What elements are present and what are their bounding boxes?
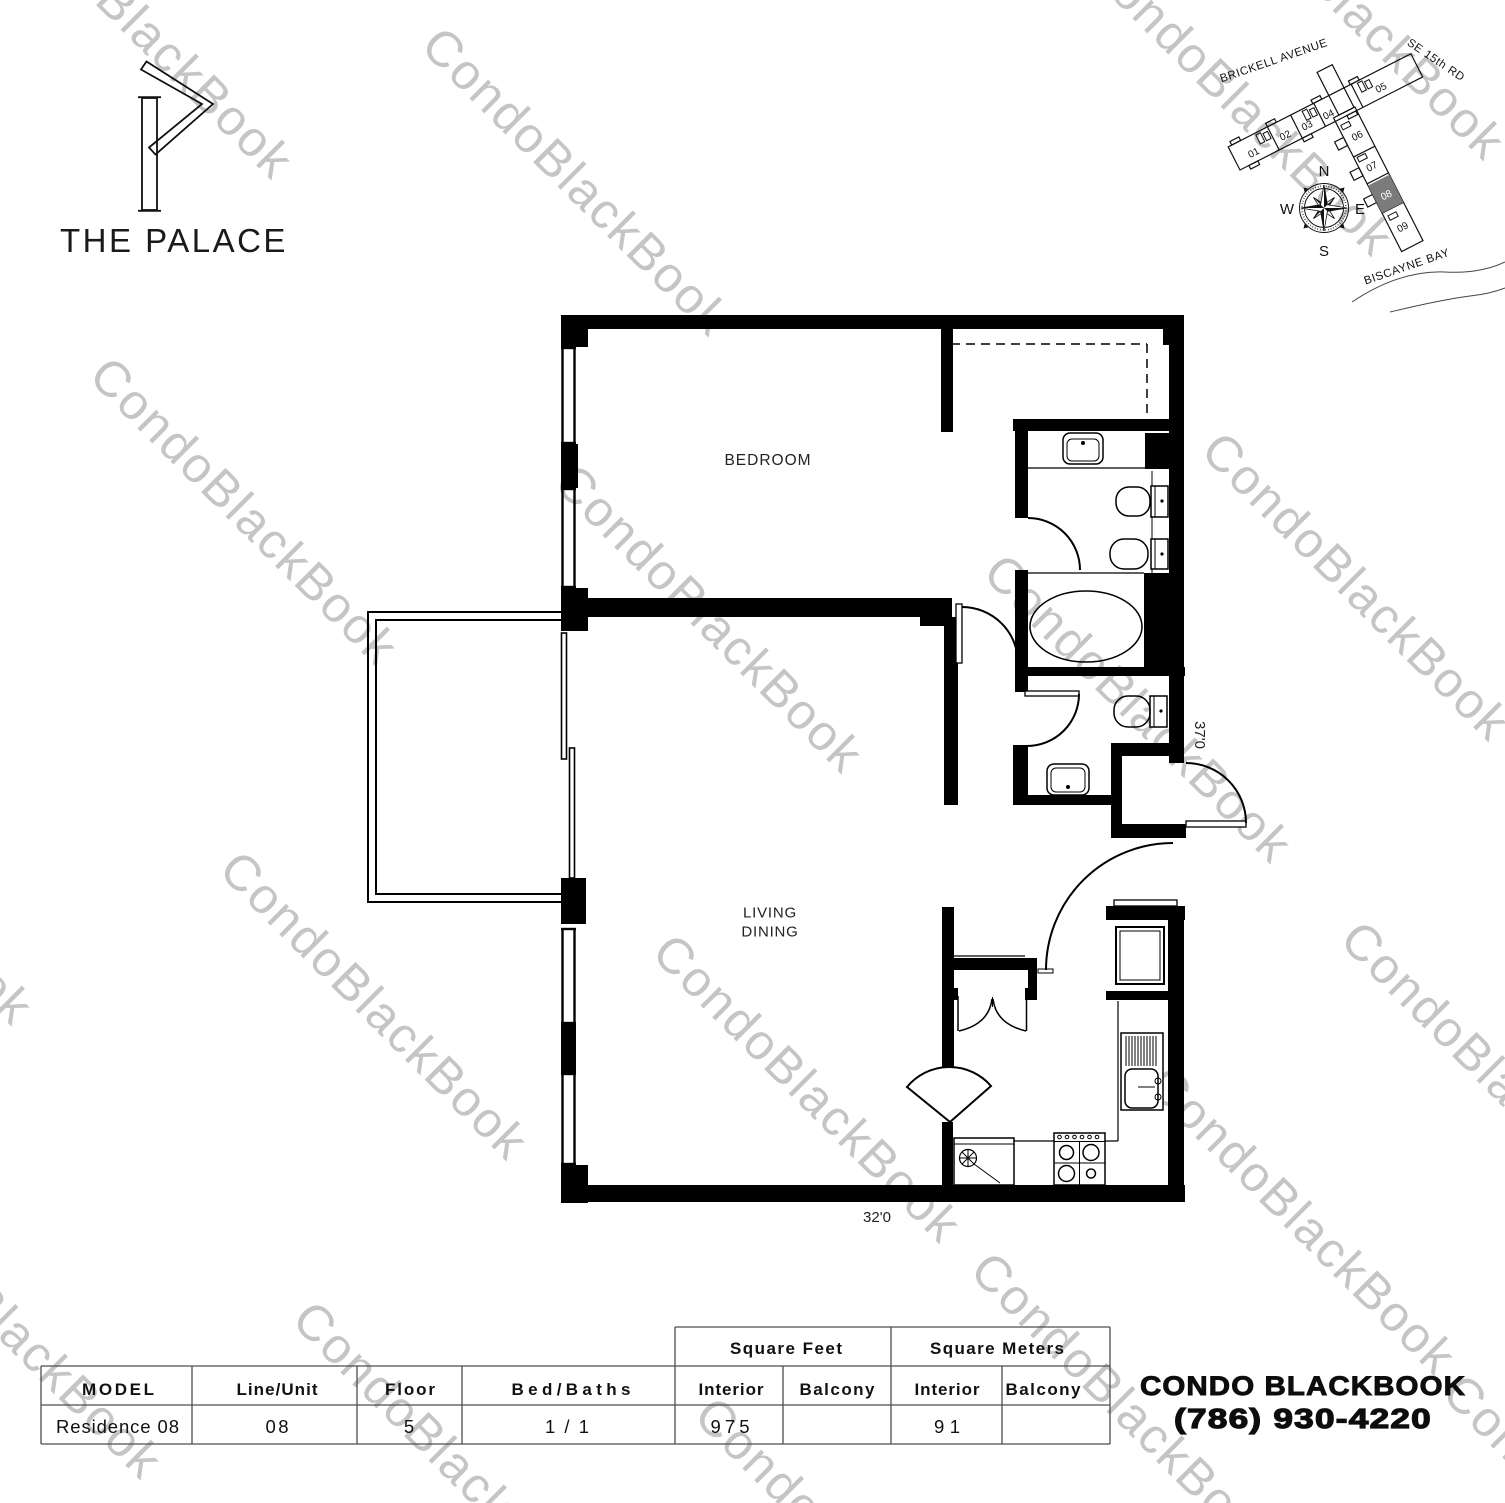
svg-text:Interior: Interior	[699, 1380, 764, 1399]
svg-text:Interior: Interior	[915, 1380, 980, 1399]
svg-text:THE PALACE: THE PALACE	[60, 222, 288, 259]
svg-text:Square Meters: Square Meters	[930, 1339, 1064, 1358]
svg-text:BEDROOM: BEDROOM	[724, 452, 811, 469]
svg-text:LIVING: LIVING	[743, 905, 797, 922]
svg-text:Floor: Floor	[385, 1380, 435, 1399]
svg-text:W: W	[1280, 201, 1295, 218]
svg-text:32'0: 32'0	[863, 1209, 891, 1226]
svg-text:Square Feet: Square Feet	[730, 1339, 842, 1358]
svg-text:Line/Unit: Line/Unit	[237, 1380, 318, 1399]
svg-text:37'0: 37'0	[1191, 721, 1208, 749]
svg-text:975: 975	[711, 1416, 750, 1437]
svg-text:(786) 930-4220: (786) 930-4220	[1174, 1403, 1432, 1434]
svg-text:MODEL: MODEL	[82, 1380, 154, 1399]
svg-text:Residence 08: Residence 08	[56, 1416, 179, 1437]
svg-text:S: S	[1319, 243, 1329, 260]
svg-text:5: 5	[404, 1416, 414, 1437]
svg-text:1 / 1: 1 / 1	[545, 1416, 589, 1437]
svg-text:E: E	[1355, 201, 1365, 218]
svg-text:Bed/Baths: Bed/Baths	[512, 1380, 631, 1399]
svg-text:N: N	[1319, 163, 1330, 180]
svg-text:DINING: DINING	[741, 924, 798, 941]
svg-text:CONDO BLACKBOOK: CONDO BLACKBOOK	[1140, 1371, 1466, 1401]
